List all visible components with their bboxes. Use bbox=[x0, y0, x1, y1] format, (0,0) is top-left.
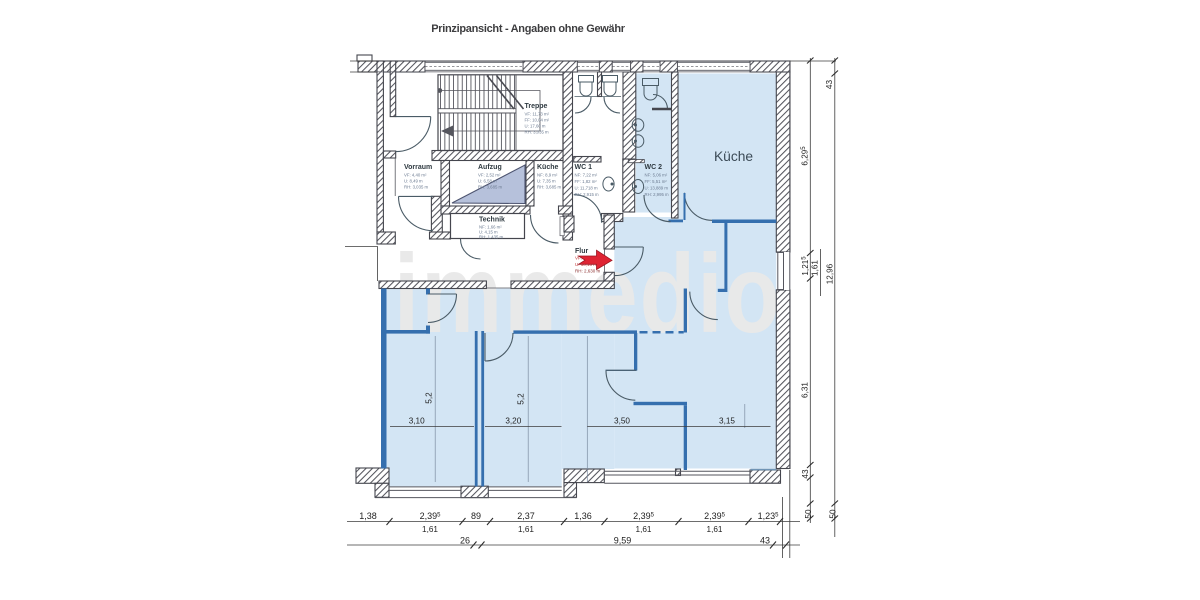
svg-text:RH: 3,035 m: RH: 3,035 m bbox=[404, 185, 429, 190]
svg-text:43: 43 bbox=[801, 469, 810, 479]
svg-text:RH: 2,915 m: RH: 2,915 m bbox=[575, 192, 600, 197]
svg-text:9,59: 9,59 bbox=[614, 536, 632, 546]
svg-text:NF: 5,06 m²: NF: 5,06 m² bbox=[645, 173, 668, 178]
svg-text:43: 43 bbox=[825, 80, 834, 90]
svg-text:Vorraum: Vorraum bbox=[404, 164, 432, 171]
svg-text:VF: 4,40 m²: VF: 4,40 m² bbox=[404, 173, 427, 178]
svg-text:89: 89 bbox=[471, 511, 481, 521]
svg-text:5,2: 5,2 bbox=[517, 393, 526, 405]
svg-text:U: 13,889 m: U: 13,889 m bbox=[645, 186, 669, 191]
svg-text:RH: 1,435 m: RH: 1,435 m bbox=[479, 235, 504, 240]
svg-text:Aufzug: Aufzug bbox=[478, 164, 502, 171]
svg-text:U: 11,718 m: U: 11,718 m bbox=[575, 186, 599, 191]
svg-text:1,61: 1,61 bbox=[707, 525, 723, 534]
svg-text:1,61: 1,61 bbox=[422, 525, 438, 534]
svg-text:1,36: 1,36 bbox=[574, 511, 592, 521]
svg-text:Treppe: Treppe bbox=[525, 103, 548, 110]
svg-text:RH: 3,685 m: RH: 3,685 m bbox=[537, 185, 562, 190]
svg-text:Prinzipansicht - Angaben ohne: Prinzipansicht - Angaben ohne Gewähr bbox=[431, 23, 626, 35]
svg-text:U: 6,58 m: U: 6,58 m bbox=[478, 179, 497, 184]
svg-text:RH: 3,035 m: RH: 3,035 m bbox=[525, 130, 550, 135]
svg-text:2,37: 2,37 bbox=[517, 511, 535, 521]
svg-text:Technik: Technik bbox=[479, 217, 505, 224]
svg-text:26: 26 bbox=[460, 536, 470, 546]
svg-text:U: 17,60 m: U: 17,60 m bbox=[525, 124, 546, 129]
svg-text:3,15: 3,15 bbox=[719, 417, 735, 426]
svg-text:3,20: 3,20 bbox=[505, 417, 521, 426]
svg-text:VF: 11,73 m²: VF: 11,73 m² bbox=[525, 112, 550, 117]
svg-text:1,61: 1,61 bbox=[811, 260, 820, 276]
svg-text:50: 50 bbox=[829, 509, 838, 519]
svg-text:3,50: 3,50 bbox=[614, 417, 630, 426]
svg-text:Küche: Küche bbox=[537, 164, 559, 171]
svg-text:WC 2: WC 2 bbox=[645, 164, 663, 171]
svg-text:RH: 3,685 m: RH: 3,685 m bbox=[478, 185, 503, 190]
svg-text:43: 43 bbox=[760, 536, 770, 546]
svg-text:NF: 8,9 m²: NF: 8,9 m² bbox=[537, 173, 558, 178]
svg-text:3,10: 3,10 bbox=[409, 417, 425, 426]
svg-text:FF: 1,82 m²: FF: 1,82 m² bbox=[575, 179, 598, 184]
svg-text:RH: 2,995 m: RH: 2,995 m bbox=[645, 192, 670, 197]
svg-text:WC 1: WC 1 bbox=[575, 164, 593, 171]
svg-text:Flur: Flur bbox=[575, 248, 588, 255]
svg-text:5,2: 5,2 bbox=[425, 392, 434, 404]
svg-text:1,61: 1,61 bbox=[636, 525, 652, 534]
svg-text:1,38: 1,38 bbox=[359, 511, 377, 521]
svg-text:VF: 2,52 m²: VF: 2,52 m² bbox=[478, 173, 501, 178]
svg-text:NF: 7,22 m²: NF: 7,22 m² bbox=[575, 173, 598, 178]
svg-text:FF: 10,04 m²: FF: 10,04 m² bbox=[525, 118, 550, 123]
svg-text:U: 8,49 m: U: 8,49 m bbox=[404, 179, 423, 184]
svg-text:Küche: Küche bbox=[714, 149, 753, 164]
svg-text:50: 50 bbox=[804, 509, 813, 519]
svg-text:6,31: 6,31 bbox=[801, 382, 810, 398]
svg-text:1,61: 1,61 bbox=[518, 525, 534, 534]
svg-text:FF: 5,51 m²: FF: 5,51 m² bbox=[645, 179, 668, 184]
svg-text:12,96: 12,96 bbox=[826, 263, 835, 284]
svg-text:U: 7,35 m: U: 7,35 m bbox=[537, 179, 556, 184]
